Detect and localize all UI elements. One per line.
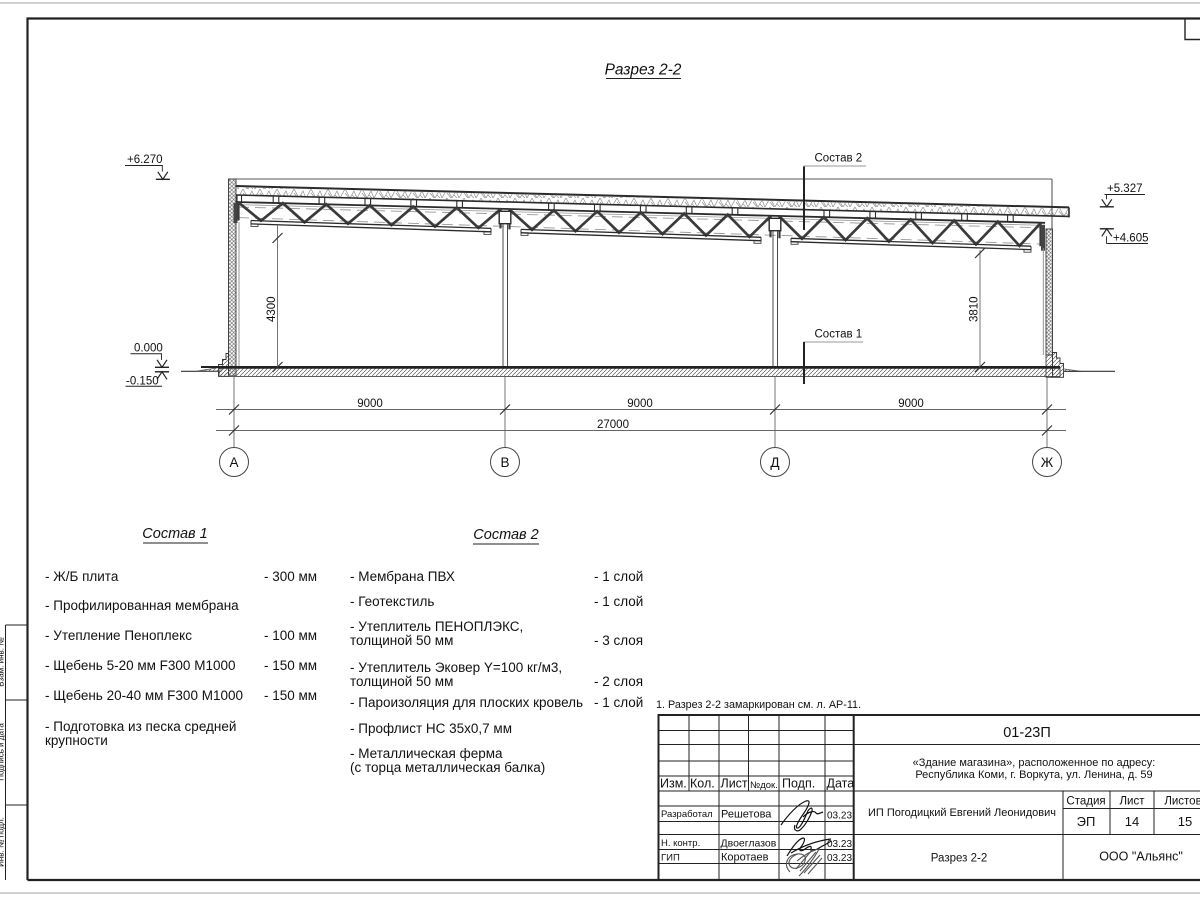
svg-text:Республика Коми, г. Воркута, у: Республика Коми, г. Воркута, ул. Ленина,… (915, 769, 1152, 781)
svg-text:- Профилированная мембрана: - Профилированная мембрана (45, 598, 239, 613)
svg-text:№док.: №док. (750, 780, 778, 791)
svg-text:15: 15 (1178, 814, 1192, 829)
svg-text:Состав 1: Состав 1 (815, 329, 863, 341)
svg-text:Разрез 2-2: Разрез 2-2 (605, 62, 682, 79)
svg-text:- 1 слой: - 1 слой (594, 594, 643, 609)
svg-text:«Здание магазина», расположенн: «Здание магазина», расположенное по адре… (913, 757, 1156, 769)
svg-text:- Металлическая ферма: - Металлическая ферма (350, 746, 503, 761)
svg-text:+6.270: +6.270 (127, 154, 163, 166)
svg-text:9000: 9000 (627, 398, 653, 410)
svg-text:+4.605: +4.605 (1113, 233, 1149, 245)
svg-text:Лист: Лист (721, 777, 748, 791)
svg-text:Н. контр.: Н. контр. (661, 838, 700, 849)
svg-text:Ж: Ж (1041, 455, 1054, 470)
svg-text:Стадия: Стадия (1066, 796, 1105, 808)
svg-text:- Пароизоляция для плоских кро: - Пароизоляция для плоских кровель (350, 695, 583, 710)
svg-text:Кол.: Кол. (690, 777, 715, 791)
svg-text:9000: 9000 (898, 398, 924, 410)
svg-text:4300: 4300 (266, 296, 278, 322)
svg-text:- 3 слоя: - 3 слоя (594, 633, 643, 648)
svg-text:- Щебень 5-20 мм F300 М1000: - Щебень 5-20 мм F300 М1000 (45, 658, 235, 673)
svg-text:А: А (229, 455, 238, 470)
svg-text:- Утеплитель ПЕНОПЛЭКС,: - Утеплитель ПЕНОПЛЭКС, (350, 619, 523, 634)
svg-text:- Утепление Пеноплекс: - Утепление Пеноплекс (45, 628, 192, 643)
svg-text:- Утеплитель Эковер Y=100 кг/м: - Утеплитель Эковер Y=100 кг/м3, (350, 660, 562, 675)
svg-text:Изм.: Изм. (660, 777, 687, 791)
svg-text:0.000: 0.000 (134, 343, 163, 355)
svg-text:- 2 слоя: - 2 слоя (594, 674, 643, 689)
svg-text:1. Разрез 2-2 замаркирован см.: 1. Разрез 2-2 замаркирован см. л. АР-11. (656, 699, 861, 711)
svg-text:- Мембрана ПВХ: - Мембрана ПВХ (350, 569, 455, 584)
svg-text:Разработал: Разработал (661, 809, 713, 820)
svg-text:- 150 мм: - 150 мм (264, 688, 317, 703)
svg-text:Состав 2: Состав 2 (815, 153, 863, 165)
svg-text:Коротаев: Коротаев (721, 852, 769, 864)
svg-text:9000: 9000 (357, 398, 383, 410)
svg-text:01-23П: 01-23П (1003, 725, 1051, 741)
svg-text:крупности: крупности (45, 733, 108, 748)
svg-text:В: В (500, 455, 509, 470)
svg-text:Состав 2: Состав 2 (473, 527, 538, 543)
svg-text:(с торца металлическая балка): (с торца металлическая балка) (350, 760, 545, 775)
svg-text:ООО "Альянс": ООО "Альянс" (1099, 850, 1183, 864)
svg-text:Д: Д (770, 455, 779, 470)
svg-text:- 1 слой: - 1 слой (594, 569, 643, 584)
svg-text:03.23: 03.23 (827, 839, 852, 850)
svg-text:толщиной 50 мм: толщиной 50 мм (350, 674, 453, 689)
svg-text:Состав 1: Состав 1 (142, 526, 207, 542)
svg-text:Подпись и дата: Подпись и дата (0, 723, 6, 781)
svg-text:Инв. № подл.: Инв. № подл. (0, 817, 6, 867)
svg-text:- Геотекстиль: - Геотекстиль (350, 594, 434, 609)
svg-text:-0.150: -0.150 (126, 375, 159, 387)
svg-text:ЭП: ЭП (1077, 814, 1096, 829)
svg-text:- Профлист НС 35х0,7 мм: - Профлист НС 35х0,7 мм (350, 721, 512, 736)
svg-text:Решетова: Решетова (721, 809, 772, 821)
svg-text:- Ж/Б плита: - Ж/Б плита (45, 569, 119, 584)
svg-text:- 100 мм: - 100 мм (264, 628, 317, 643)
svg-text:Разрез 2-2: Разрез 2-2 (931, 853, 987, 865)
svg-text:- 1 слой: - 1 слой (594, 695, 643, 710)
svg-text:Дата: Дата (827, 777, 855, 791)
svg-text:- 150 мм: - 150 мм (264, 658, 317, 673)
svg-text:3810: 3810 (969, 296, 981, 322)
svg-text:Двоеглазов: Двоеглазов (721, 838, 777, 850)
svg-text:- Подготовка из песка средней: - Подготовка из песка средней (45, 719, 236, 734)
svg-text:Взам. инв. №: Взам. инв. № (0, 637, 6, 687)
svg-text:27000: 27000 (597, 419, 629, 431)
svg-text:- 300 мм: - 300 мм (264, 569, 317, 584)
svg-text:толщиной 50 мм: толщиной 50 мм (350, 633, 453, 648)
svg-text:03.23: 03.23 (827, 853, 852, 864)
svg-text:ГИП: ГИП (661, 853, 680, 864)
svg-text:Лист: Лист (1120, 796, 1146, 808)
svg-text:03.23: 03.23 (827, 811, 852, 822)
svg-text:ИП Погодицкий Евгений Леонидов: ИП Погодицкий Евгений Леонидович (868, 807, 1056, 819)
svg-text:Подп.: Подп. (782, 777, 815, 791)
svg-text:+5.327: +5.327 (1107, 183, 1143, 195)
svg-text:14: 14 (1125, 814, 1139, 829)
svg-text:- Щебень 20-40 мм F300 М1000: - Щебень 20-40 мм F300 М1000 (45, 688, 243, 703)
svg-text:Листов: Листов (1164, 796, 1200, 808)
